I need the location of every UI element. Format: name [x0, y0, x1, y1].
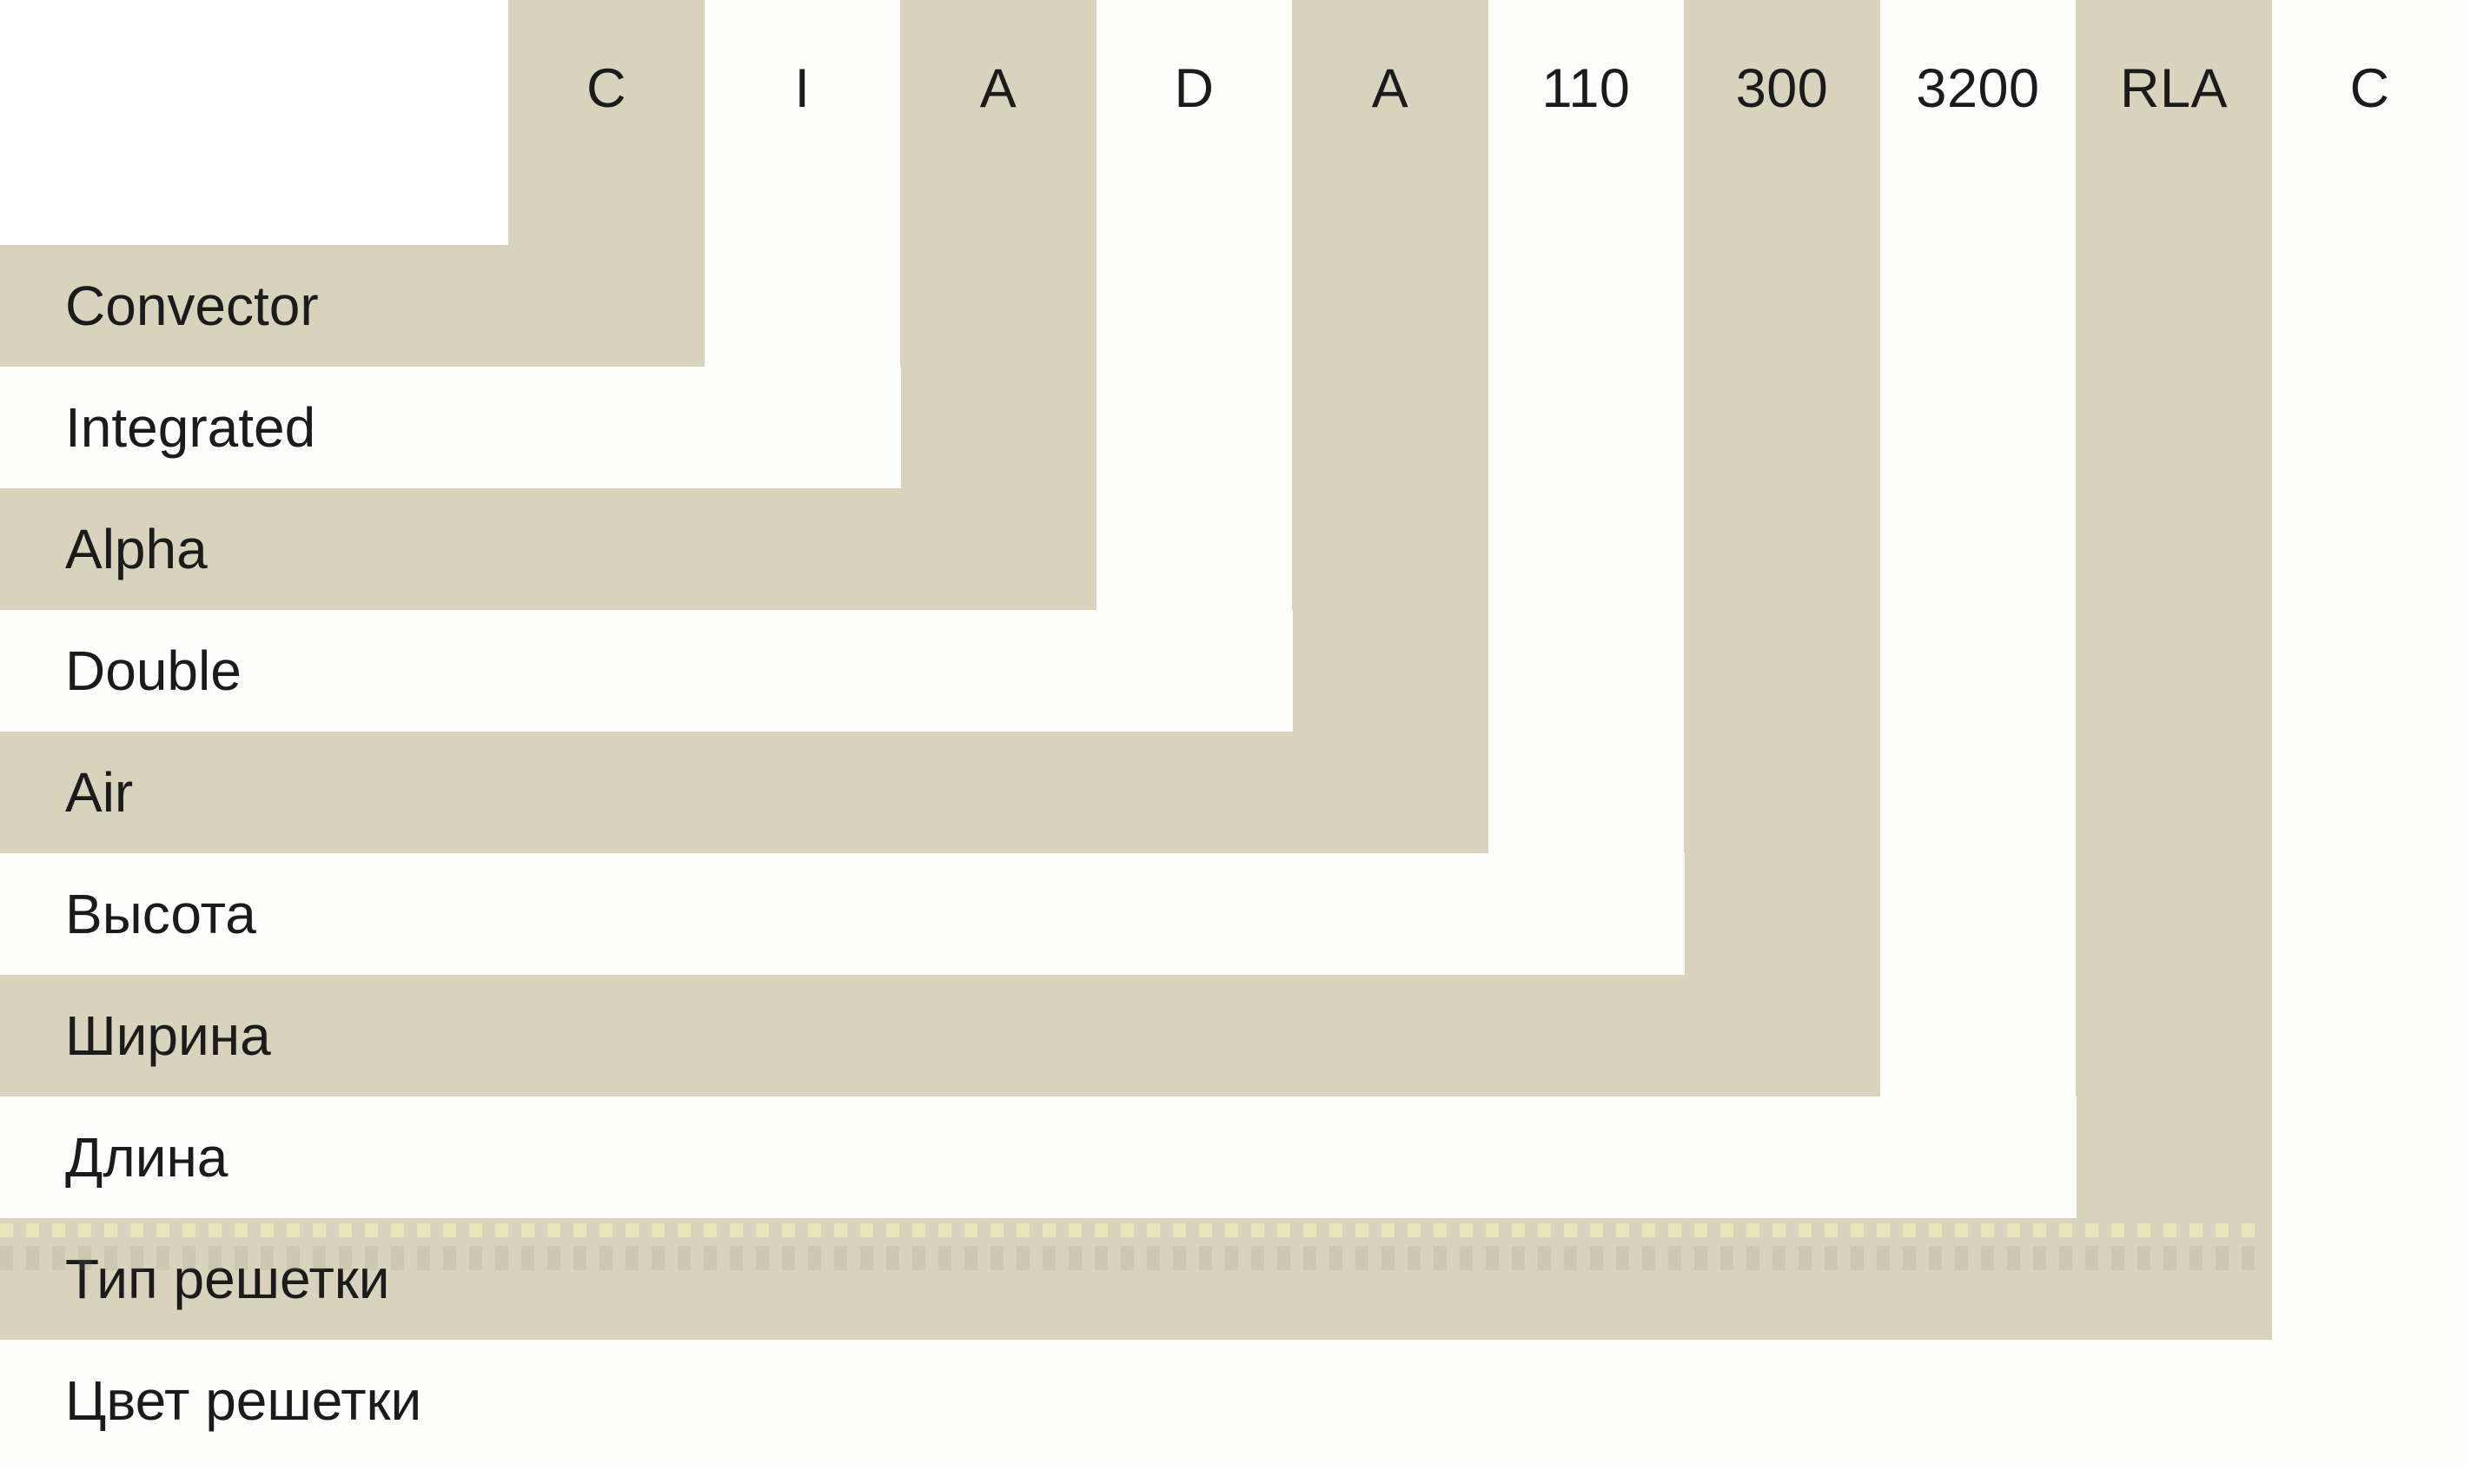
code-label-a-air: A	[1292, 62, 1488, 116]
column-band-rla: RLA	[2076, 0, 2272, 1340]
row-label-double: Double	[65, 643, 242, 699]
code-label-3200: 3200	[1880, 62, 2077, 116]
row-band-height: Высота	[0, 853, 1685, 975]
row-band-grille-type: Тип решетки	[0, 1218, 2272, 1340]
column-band-300: 300	[1684, 0, 1880, 1096]
row-label-length: Длина	[65, 1130, 228, 1185]
code-label-a-alpha: A	[900, 62, 1096, 116]
row-label-width: Ширина	[65, 1008, 271, 1063]
column-band-a-air: A	[1292, 0, 1488, 853]
row-label-integrated: Integrated	[65, 400, 315, 455]
row-label-grille-type: Тип решетки	[65, 1251, 390, 1307]
row-band-length: Длина	[0, 1096, 2077, 1218]
code-label-rla: RLA	[2076, 62, 2272, 116]
row-band-air: Air	[0, 732, 1488, 853]
code-label-c: C	[508, 62, 705, 116]
column-band-3200: 3200	[1880, 0, 2077, 1218]
row-band-alpha: Alpha	[0, 488, 1096, 610]
row-band-integrated: Integrated	[0, 367, 901, 488]
row-band-double: Double	[0, 610, 1293, 732]
row-label-convector: Convector	[65, 278, 319, 334]
row-label-grille-color: Цвет решетки	[65, 1373, 421, 1428]
row-label-air: Air	[65, 765, 133, 820]
nomenclature-diagram: C I A D A 110 300 3200 RLA C Convector I…	[0, 0, 2471, 1484]
code-label-300: 300	[1684, 62, 1880, 116]
code-label-d: D	[1096, 62, 1293, 116]
row-band-width: Ширина	[0, 975, 1880, 1096]
column-band-110: 110	[1488, 0, 1685, 975]
column-band-c-color: C	[2272, 0, 2468, 1461]
row-label-alpha: Alpha	[65, 521, 208, 577]
row-label-height: Высота	[65, 886, 256, 942]
row-band-grille-color: Цвет решетки	[0, 1340, 2468, 1461]
code-label-i: I	[705, 62, 901, 116]
row-band-convector: Convector	[0, 245, 705, 367]
code-label-c-color: C	[2272, 62, 2468, 116]
code-label-110: 110	[1488, 62, 1685, 116]
